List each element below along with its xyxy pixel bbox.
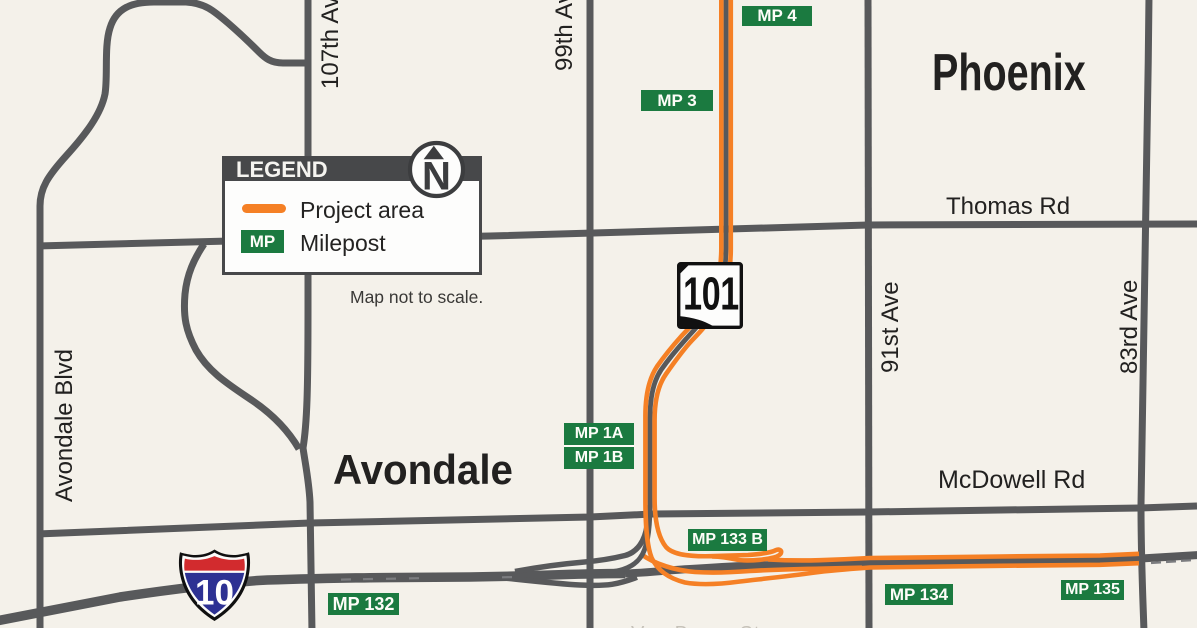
svg-text:101: 101 [683, 267, 739, 319]
svg-text:N: N [422, 155, 451, 199]
svg-text:10: 10 [195, 574, 234, 613]
